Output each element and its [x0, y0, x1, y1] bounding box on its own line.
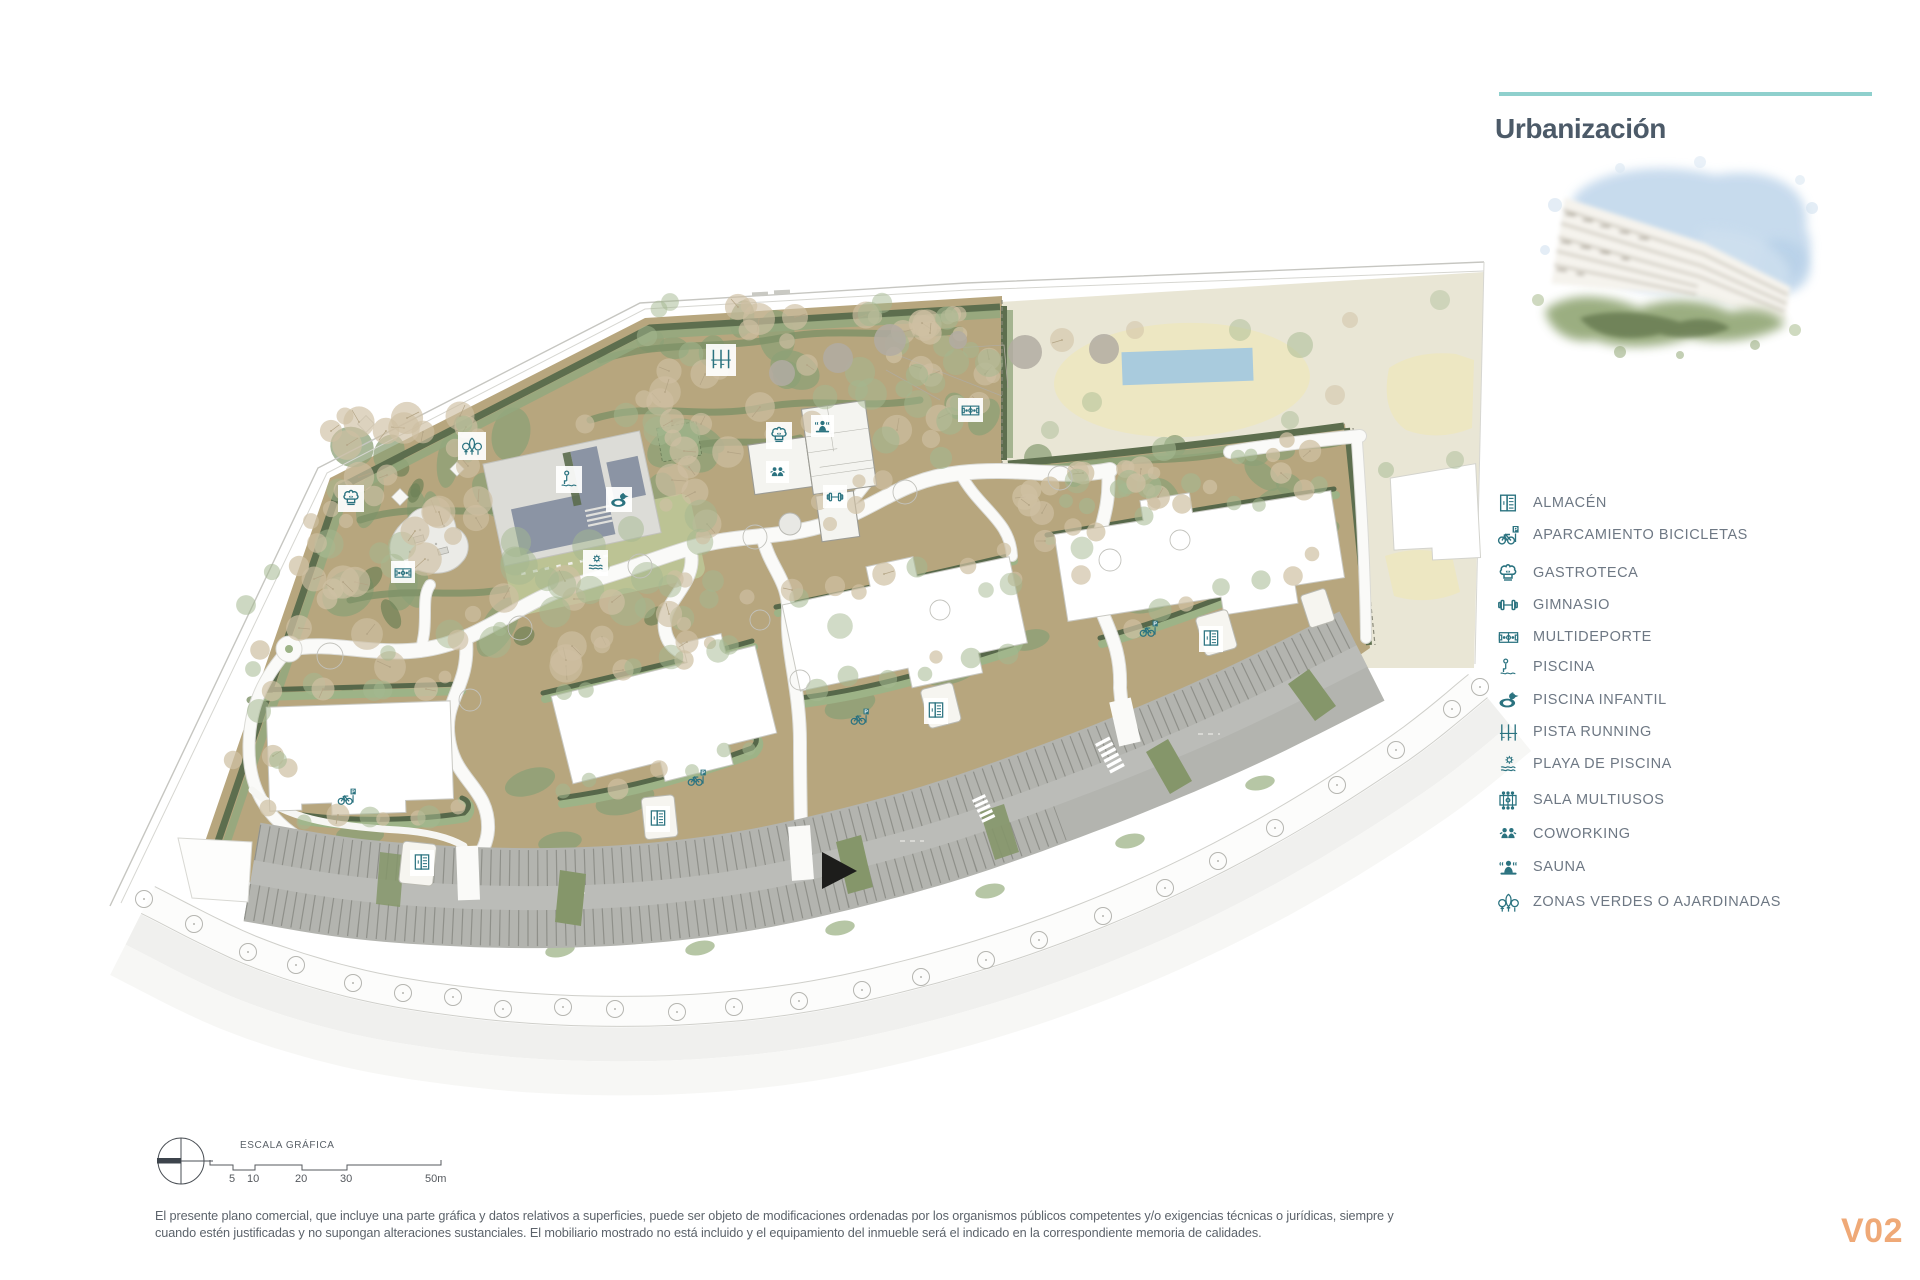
svg-text:P: P	[701, 770, 705, 776]
svg-text:P: P	[864, 709, 868, 715]
svg-text:10: 10	[247, 1173, 259, 1185]
svg-text:P: P	[1153, 621, 1157, 627]
svg-text:5: 5	[229, 1173, 235, 1185]
svg-text:30: 30	[340, 1173, 352, 1185]
svg-text:50m: 50m	[425, 1173, 446, 1185]
svg-text:20: 20	[295, 1173, 307, 1185]
svg-text:P: P	[351, 789, 355, 795]
svg-text:P: P	[1514, 527, 1518, 533]
